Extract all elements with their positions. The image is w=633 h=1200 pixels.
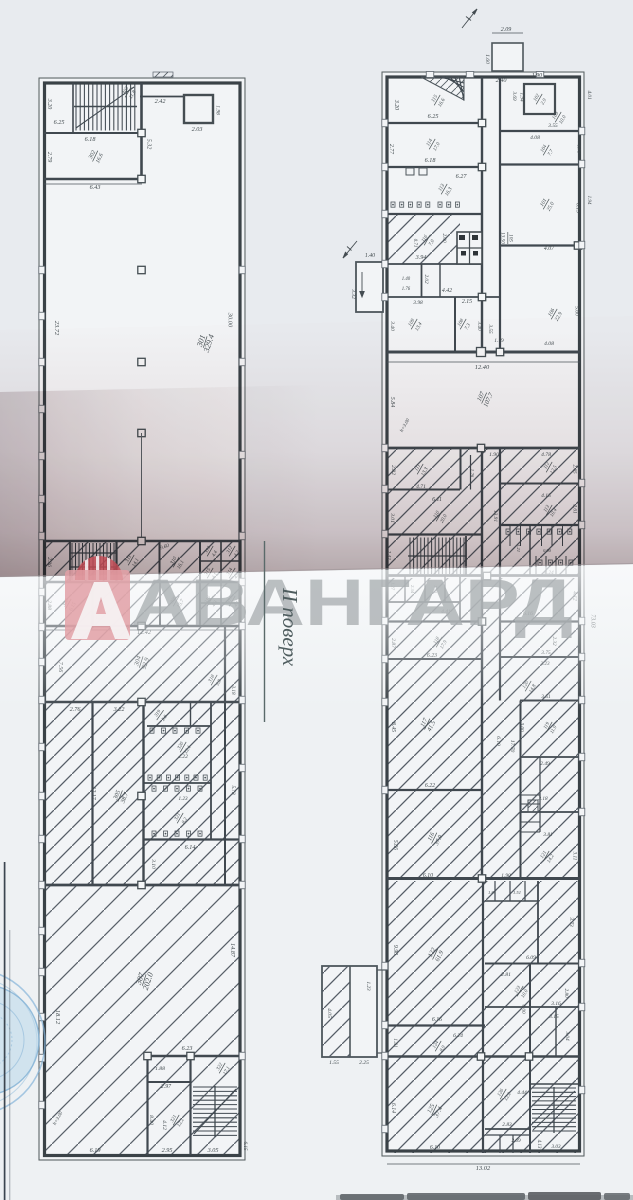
svg-text:1.81: 1.81 <box>488 890 496 895</box>
svg-text:3.55: 3.55 <box>547 123 558 129</box>
svg-text:2.81: 2.81 <box>501 972 511 978</box>
svg-text:6.10: 6.10 <box>495 736 501 746</box>
svg-text:3.32: 3.32 <box>350 288 356 299</box>
svg-text:4.07: 4.07 <box>544 245 555 252</box>
svg-text:2.79: 2.79 <box>46 152 52 163</box>
svg-text:4.01: 4.01 <box>586 90 593 99</box>
svg-text:9.90: 9.90 <box>392 945 398 955</box>
svg-text:14.87: 14.87 <box>229 943 236 958</box>
svg-text:II поверх: II поверх <box>278 587 302 667</box>
svg-text:1.81: 1.81 <box>392 1038 398 1048</box>
svg-text:13.50: 13.50 <box>499 232 505 244</box>
svg-text:6.25: 6.25 <box>428 113 439 120</box>
svg-text:2.15: 2.15 <box>462 299 472 305</box>
svg-text:3.18: 3.18 <box>538 796 547 802</box>
svg-text:6.14: 6.14 <box>390 1103 397 1113</box>
svg-text:4.05: 4.05 <box>326 1008 332 1018</box>
svg-text:4.42: 4.42 <box>442 287 452 294</box>
svg-text:6.09: 6.09 <box>526 955 536 961</box>
svg-text:3.69: 3.69 <box>511 91 517 100</box>
svg-text:1.98: 1.98 <box>215 105 221 115</box>
svg-text:1.73: 1.73 <box>576 144 582 153</box>
svg-text:4.08: 4.08 <box>530 135 540 141</box>
svg-text:2.77: 2.77 <box>388 144 394 155</box>
svg-text:3.81: 3.81 <box>542 832 553 838</box>
svg-text:1.40: 1.40 <box>365 252 375 259</box>
svg-text:3.00: 3.00 <box>519 722 525 731</box>
svg-text:6.18: 6.18 <box>85 136 97 143</box>
svg-text:2.25: 2.25 <box>359 1060 369 1066</box>
svg-text:18.12: 18.12 <box>54 1010 61 1025</box>
svg-text:1.51: 1.51 <box>513 890 521 895</box>
svg-text:0.71: 0.71 <box>412 239 417 248</box>
svg-text:17.70: 17.70 <box>509 740 515 753</box>
svg-text:6.27: 6.27 <box>456 173 468 180</box>
svg-text:3.73: 3.73 <box>568 916 574 927</box>
svg-text:5.60: 5.60 <box>574 306 580 316</box>
svg-text:3.03: 3.03 <box>551 1144 560 1150</box>
svg-text:8.40: 8.40 <box>148 1115 154 1125</box>
svg-text:1.94: 1.94 <box>519 92 526 101</box>
svg-text:1.60: 1.60 <box>484 54 490 64</box>
svg-text:1.23: 1.23 <box>365 981 371 990</box>
svg-text:6.24: 6.24 <box>453 1033 463 1039</box>
svg-text:2.83: 2.83 <box>502 1122 512 1128</box>
svg-text:4.44: 4.44 <box>517 1090 527 1096</box>
svg-text:1.23: 1.23 <box>178 796 187 802</box>
svg-text:5.86: 5.86 <box>392 840 398 850</box>
svg-text:13.02: 13.02 <box>476 1165 491 1172</box>
svg-text:1.40: 1.40 <box>402 277 411 282</box>
svg-text:1.76: 1.76 <box>402 287 411 292</box>
svg-text:3.11: 3.11 <box>572 852 578 861</box>
svg-text:12.17: 12.17 <box>90 786 96 801</box>
svg-text:2.95: 2.95 <box>162 1147 173 1154</box>
svg-text:6.14: 6.14 <box>185 844 196 851</box>
svg-text:4.12: 4.12 <box>161 1120 167 1130</box>
svg-text:6.19: 6.19 <box>90 1147 101 1154</box>
svg-text:1.90: 1.90 <box>501 873 511 879</box>
svg-text:6.00: 6.00 <box>520 1004 526 1013</box>
svg-text:6.43: 6.43 <box>90 184 101 191</box>
svg-text:8.45: 8.45 <box>390 722 397 732</box>
svg-text:3.98: 3.98 <box>412 300 423 306</box>
svg-text:4.13: 4.13 <box>536 1140 541 1149</box>
svg-text:6.18: 6.18 <box>425 157 437 164</box>
svg-text:2.97: 2.97 <box>161 1084 172 1090</box>
svg-text:3.10: 3.10 <box>150 858 156 869</box>
svg-text:2.09: 2.09 <box>501 27 512 33</box>
svg-text:1.88: 1.88 <box>155 1066 165 1072</box>
svg-text:3.15: 3.15 <box>548 1014 559 1020</box>
svg-text:2.80: 2.80 <box>563 988 569 997</box>
svg-text:2.00: 2.00 <box>441 233 447 242</box>
svg-text:2.02: 2.02 <box>423 274 429 283</box>
svg-text:3.16: 3.16 <box>550 1001 561 1007</box>
svg-text:АВАНГАРД: АВАНГАРД <box>131 565 573 639</box>
svg-text:3.05: 3.05 <box>207 1147 219 1154</box>
svg-text:2.69: 2.69 <box>511 1138 520 1144</box>
svg-text:5.32: 5.32 <box>146 139 152 150</box>
svg-text:6.23: 6.23 <box>182 1045 193 1052</box>
svg-text:6.10: 6.10 <box>430 1145 440 1151</box>
svg-text:1.55: 1.55 <box>329 1060 339 1066</box>
svg-text:3.04: 3.04 <box>564 1031 571 1040</box>
svg-text:2.40: 2.40 <box>496 77 508 84</box>
svg-text:1.94: 1.94 <box>586 196 591 205</box>
svg-text:6.10: 6.10 <box>423 873 433 879</box>
svg-text:6.13: 6.13 <box>575 203 581 213</box>
svg-text:105: 105 <box>508 234 514 242</box>
svg-text:6.22: 6.22 <box>425 783 435 789</box>
svg-text:6.16: 6.16 <box>432 1017 442 1023</box>
svg-text:3.20: 3.20 <box>46 98 52 110</box>
svg-text:5.78: 5.78 <box>230 785 236 794</box>
svg-text:1.90: 1.90 <box>532 73 542 79</box>
svg-text:6.25: 6.25 <box>54 119 65 126</box>
svg-text:6.15: 6.15 <box>242 1141 248 1150</box>
svg-text:2.42: 2.42 <box>155 98 166 105</box>
svg-text:2.03: 2.03 <box>192 126 203 133</box>
svg-text:2.49: 2.49 <box>540 761 550 767</box>
svg-text:3.94: 3.94 <box>415 254 427 261</box>
svg-text:3.20: 3.20 <box>393 99 399 110</box>
